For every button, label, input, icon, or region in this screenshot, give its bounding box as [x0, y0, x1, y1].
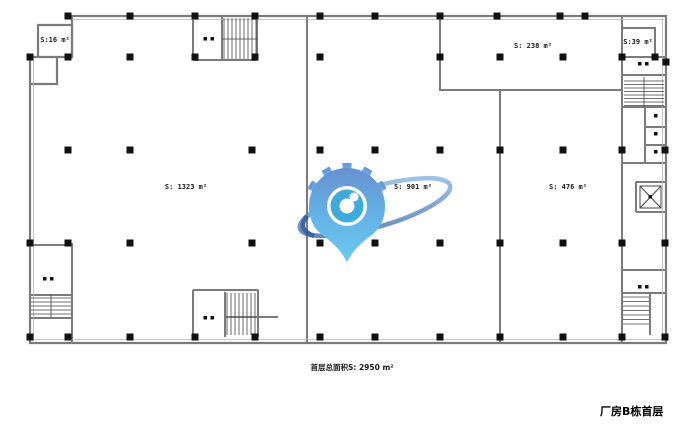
- total-area-label: 首层总面积S: 2950 m²: [310, 362, 393, 373]
- stairs-top-right: [624, 77, 664, 107]
- room-area-label-16: S:16 m²: [40, 36, 70, 44]
- watermark-logo: [295, 163, 456, 262]
- room-area-label-39: S:39 m²: [623, 38, 653, 46]
- eye-icon: [327, 186, 367, 226]
- stairs-bottom-right: [623, 297, 649, 324]
- room-area-label-901: S: 901 m²: [394, 183, 432, 191]
- room-area-label-476: S: 476 m²: [549, 183, 587, 191]
- drawing-title: 厂房B栋首层: [600, 403, 663, 419]
- room-area-label-1323: S: 1323 m²: [165, 183, 207, 191]
- room-area-label-238: S: 238 m²: [514, 42, 552, 50]
- stairs-bottom-center: [227, 293, 255, 335]
- floor-plan-canvas: S:16 m² S: 238 m² S:39 m² S: 1323 m² S: …: [0, 0, 690, 426]
- stairs-top-center: [222, 18, 257, 59]
- stairs-bottom-left: [31, 295, 71, 318]
